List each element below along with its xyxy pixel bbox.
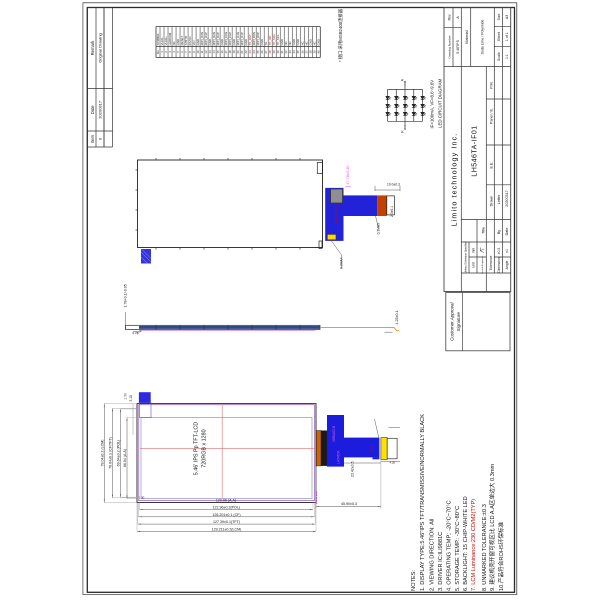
svg-text:Soda Lime / Polyimide: Soda Lime / Polyimide — [481, 20, 485, 55]
svg-text:By: By — [497, 230, 501, 234]
svg-text:Customer Approval: Customer Approval — [450, 302, 455, 341]
svg-text:78.04±0.2 (LCM): 78.04±0.2 (LCM) — [100, 440, 104, 467]
svg-text:LED CIRCUIT DIAGRAM: LED CIRCUIT DIAGRAM — [437, 78, 442, 128]
svg-text:A: A — [456, 16, 460, 19]
svg-text:1 of 1: 1 of 1 — [505, 32, 509, 41]
svg-text:1.30: 1.30 — [139, 496, 145, 500]
svg-text:10.产品符合ROHS环保标准: 10.产品符合ROHS环保标准 — [497, 521, 505, 591]
svg-text:1:1: 1:1 — [505, 54, 509, 59]
svg-text:66.04 (A.A): 66.04 (A.A) — [123, 449, 127, 467]
svg-text:mm: mm — [472, 248, 476, 254]
svg-text:0.3MAX: 0.3MAX — [377, 222, 381, 235]
svg-text:129.211±0.2(LCM): 129.211±0.2(LCM) — [212, 528, 242, 532]
svg-text:General Roughness: General Roughness — [482, 256, 484, 274]
svg-text:1.78+0.1/-0.05: 1.78+0.1/-0.05 — [124, 284, 128, 307]
svg-text:5.46"IPS: 5.46"IPS — [456, 39, 460, 53]
svg-text:LH546TA-IF01: LH546TA-IF01 — [335, 204, 339, 226]
svg-text:5.46' IPS Pp TFT-LCD: 5.46' IPS Pp TFT-LCD — [194, 422, 200, 475]
svg-text:Original Drawing: Original Drawing — [98, 33, 103, 63]
svg-text:45.90±0.3: 45.90±0.3 — [341, 502, 357, 506]
svg-text:10.0±0.3: 10.0±0.3 — [387, 182, 400, 186]
svg-text:122.96±0.2(POL): 122.96±0.2(POL) — [212, 506, 240, 510]
svg-text:1850A03-B: 1850A03-B — [332, 426, 336, 442]
svg-text:Date: Date — [505, 228, 509, 236]
svg-text:6. BACKLIGHT: 15 CHIP-WHITE LE: 6. BACKLIGHT: 15 CHIP-WHITE LED — [463, 496, 469, 591]
svg-text:JP05: JP05 — [370, 445, 374, 452]
svg-text:126.201±0.1 (CF): 126.201±0.1 (CF) — [212, 513, 240, 517]
svg-text:2. VIEWING DIRECTION: All: 2. VIEWING DIRECTION: All — [430, 519, 436, 591]
svg-text:Title: Title — [481, 227, 485, 234]
svg-text:2.0±0.1: 2.0±0.1 — [390, 206, 394, 217]
svg-text:20200317: 20200317 — [98, 100, 103, 119]
svg-text:Letter: Letter — [497, 194, 501, 204]
svg-text:0: 0 — [98, 137, 103, 140]
svg-text:40: 40 — [316, 50, 320, 54]
svg-text:±0.2: ±0.2 — [497, 248, 501, 255]
svg-text:GND: GND — [316, 39, 320, 45]
svg-text:23.42±0.5: 23.42±0.5 — [351, 461, 355, 477]
svg-text:8. UNMARKED TOLERANCE:±0.3: 8. UNMARKED TOLERANCE:±0.3 — [482, 504, 488, 591]
svg-text:Signature: Signature — [456, 312, 461, 332]
svg-text:Unless Otherwise Specified: Unless Otherwise Specified — [464, 241, 468, 273]
svg-text:IF=100mA, VF=8.6~9.6V: IF=100mA, VF=8.6~9.6V — [430, 80, 435, 129]
svg-text:Scale: Scale — [497, 52, 501, 61]
svg-text:127.39±0.1(TFT): 127.39±0.1(TFT) — [213, 520, 240, 524]
svg-text:3. DRIVER IC:ILI9881C: 3. DRIVER IC:ILI9881C — [438, 532, 444, 591]
svg-text:5. STORAGE TEMP.: -30°C~80°C: 5. STORAGE TEMP.: -30°C~80°C — [455, 506, 461, 591]
svg-text:Remark: Remark — [90, 40, 95, 56]
svg-text:0.78: 0.78 — [133, 331, 139, 335]
svg-text:1.08: 1.08 — [124, 393, 128, 400]
svg-text:69.64±0.2 (POL): 69.64±0.2 (POL) — [117, 440, 121, 467]
svg-text:4.25±0.1: 4.25±0.1 — [395, 311, 399, 325]
svg-text:P.M.: P.M. — [489, 81, 493, 88]
svg-text:K: K — [401, 130, 405, 133]
svg-text:Tolerance: Tolerance — [489, 256, 493, 271]
svg-text:Drawn: Drawn — [489, 196, 493, 207]
svg-text:E.E.: E.E. — [489, 162, 493, 169]
svg-text:20200317: 20200317 — [505, 190, 509, 206]
svg-text:9. 建议机壳开窗可视区比 LCD A.A区单边大 0.3m: 9. 建议机壳开窗可视区比 LCD A.A区单边大 0.3mm — [488, 463, 496, 591]
svg-text:Date: Date — [90, 105, 95, 115]
svg-text:Limito technology Inc.: Limito technology Inc. — [450, 133, 459, 227]
svg-text:Material: Material — [465, 30, 469, 43]
svg-text:NOTES:: NOTES: — [411, 570, 417, 591]
svg-text:4. OPERATING TEMP.: -20°C~70°: 4. OPERATING TEMP.: -20°C~70°C — [447, 500, 453, 591]
svg-text:Angle: Angle — [505, 261, 509, 270]
svg-text:LH546TA: LH546TA — [337, 450, 341, 464]
svg-text:120.96 (A.A): 120.96 (A.A) — [216, 498, 236, 502]
svg-text:Dimension: Dimension — [497, 257, 501, 272]
svg-text:* 接口:采用MSB2400连接器: * 接口:采用MSB2400连接器 — [337, 8, 344, 62]
svg-text:1. DISPLAY TYPE:5.46"IPS TFT/T: 1. DISPLAY TYPE:5.46"IPS TFT/TRANSMISSIV… — [420, 414, 426, 591]
svg-text:Size: Size — [497, 14, 501, 21]
svg-text:A: A — [401, 78, 405, 81]
svg-text:Item: Item — [90, 134, 95, 143]
svg-text:0.3MAX: 0.3MAX — [340, 256, 344, 269]
svg-text:A3: A3 — [505, 15, 509, 19]
svg-text:Panel / E.: Panel / E. — [489, 108, 493, 124]
svg-text:Unit: Unit — [472, 262, 476, 268]
svg-text:±1: ±1 — [505, 249, 509, 253]
svg-text:LH546TA-IF01: LH546TA-IF01 — [472, 125, 479, 176]
svg-text:Sheet: Sheet — [497, 32, 501, 41]
svg-text:720RGB x 1280: 720RGB x 1280 — [201, 429, 207, 467]
svg-text:70.64±0.1 (CF/TFT): 70.64±0.1 (CF/TFT) — [109, 437, 113, 469]
svg-text:47.78±0.30: 47.78±0.30 — [346, 166, 350, 185]
svg-text:4.20: 4.20 — [390, 461, 396, 465]
svg-text:3.18: 3.18 — [129, 395, 133, 402]
svg-text:Drawing Number: Drawing Number — [447, 35, 451, 58]
svg-text:7. LCM Luminance:230 CD/M2(TYP: 7. LCM Luminance:230 CD/M2(TYP) — [471, 499, 477, 591]
svg-text:Rev: Rev — [447, 14, 451, 20]
